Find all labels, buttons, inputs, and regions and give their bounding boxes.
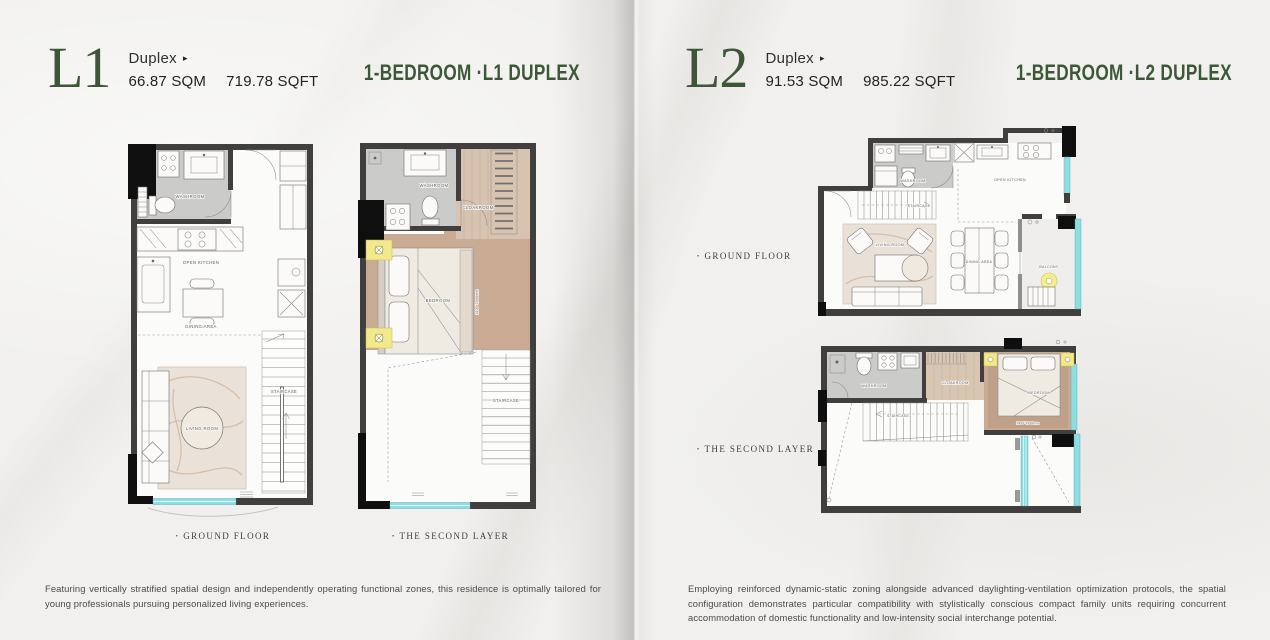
room-label-open-kitchen: OPEN KITCHEN <box>994 178 1026 182</box>
toilet-icon <box>856 353 872 375</box>
kitchen-counter <box>954 143 1051 162</box>
sofa <box>852 287 922 306</box>
sink-icon <box>926 145 950 161</box>
washer-icon <box>158 151 179 177</box>
room-label-living-room: LIVING ROOM <box>186 426 219 431</box>
l1-second-layer-plan: WASHROOM CLOAKROOM BEDROOM STAIRCASE 180… <box>358 138 543 515</box>
room-label-cloakroom: CLOAKROOM <box>941 381 968 385</box>
l2-ground-caption: •GROUND FLOOR <box>697 251 792 261</box>
kitchen-counter <box>137 227 243 251</box>
l2-area-sqft: 985.22 SQFT <box>863 73 955 90</box>
wall-lamp-icon <box>366 328 392 348</box>
l2-header: L2 Duplex▸ 91.53 SQM 985.22 SQFT <box>685 44 955 92</box>
sink-icon <box>901 353 919 368</box>
room-label-balcony: BALCONY <box>1039 265 1058 269</box>
bullet-icon: • <box>697 447 701 453</box>
towel-rack-icon <box>138 187 147 217</box>
toilet-icon <box>902 168 916 187</box>
l1-area-sqm: 66.87 SQM <box>128 73 206 90</box>
l2-unit-type: Duplex <box>765 50 814 67</box>
l1-unit-letter: L1 <box>48 44 110 92</box>
l1-second-caption: •THE SECOND LAYER <box>358 531 543 541</box>
room-label-staircase: STAIRCASE <box>887 414 910 418</box>
closet <box>280 151 306 229</box>
staircase <box>262 331 305 493</box>
l2-second-caption: •THE SECOND LAYER <box>697 444 814 454</box>
washer-icon <box>878 353 897 370</box>
window-glazing <box>1071 364 1077 430</box>
room-label-dining-area: DINING AREA <box>966 260 993 264</box>
room-label-cloakroom: CLOAKROOM <box>462 205 493 210</box>
room-label-bedroom: BEDROOM <box>1028 391 1050 395</box>
sink-icon <box>404 150 446 176</box>
round-side-table <box>902 255 928 281</box>
l1-description: Featuring vertically stratified spatial … <box>45 582 601 611</box>
room-label-dining-area: DINING AREA <box>185 324 217 329</box>
washer-icon <box>386 204 410 230</box>
room-label-open-kitchen: OPEN KITCHEN <box>183 260 219 265</box>
balcony-glazing <box>1075 219 1081 309</box>
wall-lamp-icon <box>366 240 392 260</box>
l2-unit-letter: L2 <box>685 44 747 92</box>
window-glazing <box>1064 157 1070 195</box>
l1-ground-caption: •GROUND FLOOR <box>128 531 318 541</box>
glazed-partition <box>1021 436 1028 506</box>
sink-icon <box>184 151 224 179</box>
staircase <box>482 350 530 464</box>
room-label-washroom: WASHROOM <box>420 183 449 188</box>
bullet-icon: • <box>176 534 180 540</box>
bathtub-icon <box>875 166 897 186</box>
bed-size-label: 1800*2000mm <box>475 289 479 314</box>
bullet-icon: • <box>392 534 396 540</box>
l2-description: Employing reinforced dynamic-static zoni… <box>688 582 1226 626</box>
staircase <box>863 403 968 441</box>
toilet-icon <box>422 196 439 225</box>
wall-lamp-icon <box>1061 353 1074 366</box>
l2-area-sqm: 91.53 SQM <box>765 73 843 90</box>
room-label-living-room: LIVING ROOM <box>876 243 904 247</box>
room-label-staircase: STAIRCASE <box>908 204 931 208</box>
sofa <box>142 371 169 483</box>
room-label-staircase: STAIRCASE <box>271 389 297 394</box>
shelf <box>899 145 923 154</box>
room-label-staircase: STAIRCASE <box>493 398 519 403</box>
bed-size-label: 1800*2000mm <box>1016 421 1040 425</box>
bullet-icon: • <box>697 254 701 260</box>
kitchen-sink-icon <box>137 257 170 312</box>
room-label-bedroom: BEDROOM <box>426 298 451 303</box>
l2-page-title: 1-BEDROOM ·L2 DUPLEX <box>1016 60 1232 86</box>
lounge-chair <box>1028 287 1055 306</box>
page-fold-shadow <box>552 0 656 640</box>
l2-ground-floor-plan: WASHROOM OPEN KITCHEN STAIRCASE LIVING R… <box>818 124 1090 320</box>
room-label-washroom: WASHROOM <box>861 384 886 388</box>
triangle-right-icon: ▸ <box>183 53 188 63</box>
room-label-washroom: WASHROOM <box>176 194 205 199</box>
l1-unit-type: Duplex <box>128 50 177 67</box>
brochure-spread: L1 Duplex▸ 66.87 SQM 719.78 SQFT 1-BEDRO… <box>0 0 1270 640</box>
washer-icon <box>875 145 895 162</box>
l1-page-title: 1-BEDROOM ·L1 DUPLEX <box>364 60 580 86</box>
wall-lamp-icon <box>984 353 997 366</box>
triangle-right-icon: ▸ <box>820 53 825 63</box>
l2-second-layer-plan: WASHROOM CLOAKROOM BEDROOM STAIRCASE 180… <box>818 338 1088 520</box>
l1-header: L1 Duplex▸ 66.87 SQM 719.78 SQFT <box>48 44 318 92</box>
window-glazing <box>1074 434 1080 506</box>
room-label-washroom: WASHROOM <box>900 179 925 183</box>
l1-area-sqft: 719.78 SQFT <box>226 73 318 90</box>
l1-ground-floor-plan: WASHROOM OPEN KITCHEN DINING AREA LIVING… <box>128 139 318 517</box>
